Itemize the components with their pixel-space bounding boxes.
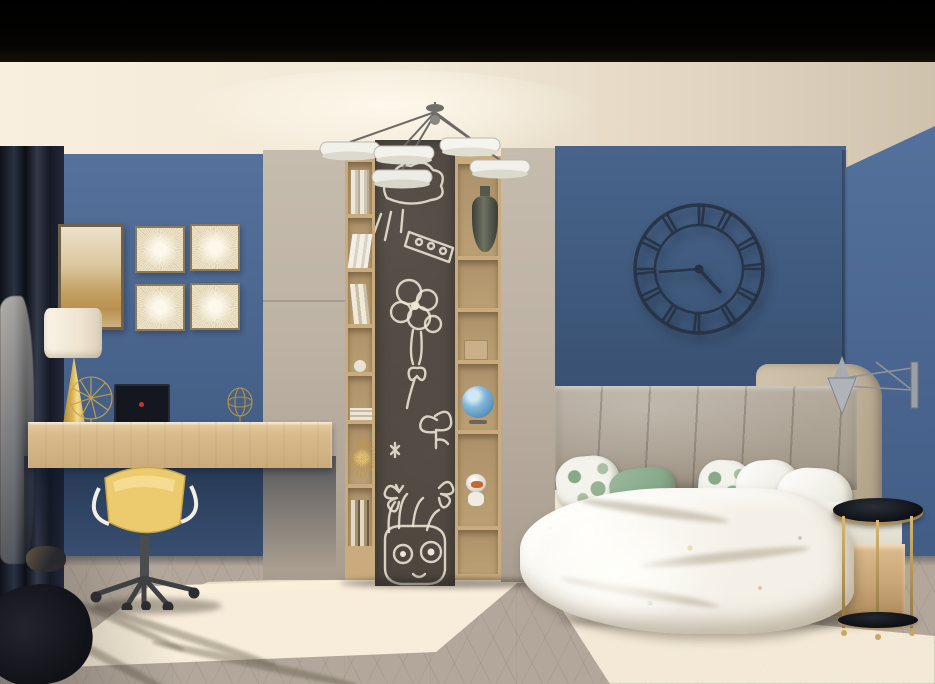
dandelion-print-1 — [135, 226, 185, 273]
shelf-cell — [458, 530, 498, 574]
minute-hand — [659, 269, 699, 272]
laptop-logo — [139, 402, 144, 407]
decor-sphere — [354, 360, 366, 372]
gift-box — [464, 340, 488, 360]
shelf-cell — [348, 424, 372, 484]
chalk-doodles — [375, 140, 455, 586]
side-table-leg — [842, 516, 845, 628]
astronaut-toy-body — [468, 492, 484, 506]
shelf-cell — [458, 260, 498, 308]
dandelion-print-3 — [135, 284, 185, 331]
books-stacked — [350, 408, 372, 420]
side-table-caster — [841, 630, 847, 636]
starburst-ornament — [349, 438, 375, 478]
books-leaning — [350, 284, 370, 324]
side-table-caster — [875, 634, 881, 640]
shelf-column-left — [345, 156, 375, 580]
hour-hand — [699, 269, 721, 293]
swing-arm-wall-lamp — [802, 350, 935, 428]
chandelier — [318, 98, 538, 198]
wire-fan-ornament — [68, 374, 114, 426]
chandelier-disc-lights — [320, 138, 530, 189]
globe — [462, 386, 494, 418]
globe-stand — [469, 420, 487, 424]
shelf-cell — [458, 312, 498, 360]
wire-sphere-ornament — [226, 386, 254, 426]
shelf-cell — [348, 376, 372, 420]
side-table-leg — [876, 520, 879, 624]
shelf-cell — [348, 218, 372, 268]
chair-gas-lift — [140, 536, 149, 580]
side-table-leg — [910, 516, 913, 628]
dark-glass-vase — [472, 196, 498, 252]
wardrobe-seam — [263, 300, 345, 302]
duvet-sun-highlight — [526, 522, 706, 626]
books-upright — [351, 500, 369, 546]
bedroom-scene — [0, 0, 935, 684]
shelf-cell — [458, 434, 498, 526]
dandelion-print-2 — [190, 224, 240, 271]
shelf-column-right — [455, 156, 501, 580]
side-table-shelf — [838, 612, 918, 628]
dandelion-print-4 — [190, 283, 240, 330]
chalkboard — [375, 140, 455, 586]
side-table-caster — [909, 630, 915, 636]
shelf-cell — [348, 328, 372, 372]
books-leaning — [348, 234, 373, 268]
shelf-cell — [348, 488, 372, 546]
ceiling-soffit — [0, 0, 935, 64]
astronaut-visor — [471, 481, 483, 488]
desk-lamp-shade — [44, 308, 102, 358]
shelf-cell — [348, 272, 372, 324]
wall-clock — [626, 196, 772, 342]
desk-chair — [83, 458, 208, 610]
duvet — [520, 488, 854, 634]
shelf-cell — [458, 364, 498, 430]
